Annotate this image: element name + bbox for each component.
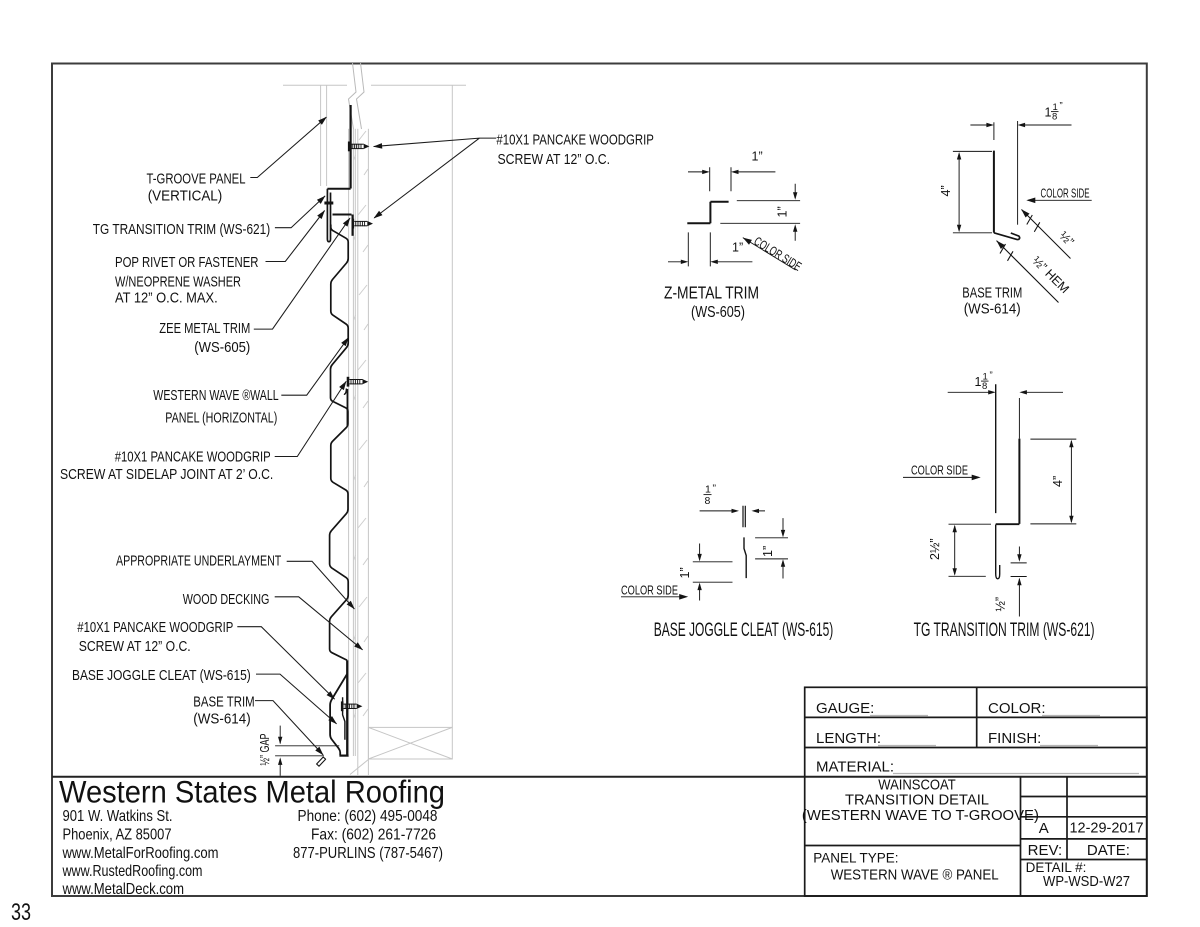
svg-text:(WS-614): (WS-614)	[964, 301, 1021, 318]
svg-text:AT 12” O.C. MAX.: AT 12” O.C. MAX.	[115, 290, 218, 307]
svg-text:”: ”	[713, 483, 717, 495]
svg-text:”: ”	[990, 370, 993, 381]
svg-text:(WESTERN WAVE TO T-GROOVE): (WESTERN WAVE TO T-GROOVE)	[802, 807, 1039, 824]
svg-text:”: ”	[1060, 101, 1063, 112]
svg-text:SCREW AT 12” O.C.: SCREW AT 12” O.C.	[79, 638, 191, 655]
svg-text:www.MetalDeck.com: www.MetalDeck.com	[62, 881, 184, 898]
svg-text:Fax: (602) 261-7726: Fax: (602) 261-7726	[311, 827, 436, 844]
svg-text:#10X1 PANCAKE WOODGRIP: #10X1 PANCAKE WOODGRIP	[77, 619, 233, 636]
svg-text:4”: 4”	[1051, 476, 1065, 487]
svg-text:BASE JOGGLE CLEAT (WS-615): BASE JOGGLE CLEAT (WS-615)	[72, 667, 251, 684]
svg-text:WOOD DECKING: WOOD DECKING	[183, 591, 270, 608]
svg-text:COLOR:: COLOR:	[988, 700, 1046, 717]
svg-text:ZEE METAL TRIM: ZEE METAL TRIM	[159, 320, 250, 337]
svg-text:COLOR SIDE: COLOR SIDE	[1041, 186, 1090, 200]
svg-text:BASE JOGGLE CLEAT (WS-615): BASE JOGGLE CLEAT (WS-615)	[654, 620, 834, 641]
svg-text:Western States Metal Roofing: Western States Metal Roofing	[59, 774, 445, 810]
svg-text:Z-METAL TRIM: Z-METAL TRIM	[664, 283, 759, 303]
svg-text:APPROPRIATE UNDERLAYMENT: APPROPRIATE UNDERLAYMENT	[116, 552, 281, 569]
svg-text:www.MetalForRoofing.com: www.MetalForRoofing.com	[62, 845, 219, 862]
svg-text:½”: ½”	[994, 597, 1008, 612]
svg-text:1”: 1”	[678, 567, 692, 578]
svg-text:33: 33	[11, 899, 31, 926]
svg-text:877-PURLINS (787-5467): 877-PURLINS (787-5467)	[293, 845, 443, 862]
svg-text:1: 1	[975, 375, 982, 389]
svg-text:1”: 1”	[732, 241, 743, 255]
svg-text:1: 1	[1045, 106, 1052, 120]
svg-text:WESTERN WAVE ®WALL: WESTERN WAVE ®WALL	[153, 387, 278, 404]
svg-text:DATE:: DATE:	[1087, 842, 1130, 859]
svg-text:Phone: (602) 495-0048: Phone: (602) 495-0048	[298, 808, 438, 825]
svg-text:1”: 1”	[752, 150, 763, 164]
svg-text:1”: 1”	[776, 206, 790, 217]
svg-text:TRANSITION DETAIL: TRANSITION DETAIL	[845, 792, 989, 809]
svg-text:POP RIVET OR FASTENER: POP RIVET OR FASTENER	[115, 254, 259, 271]
svg-text:8: 8	[1052, 112, 1057, 123]
svg-text:W/NEOPRENE WASHER: W/NEOPRENE WASHER	[115, 274, 241, 291]
svg-text:#10X1 PANCAKE WOODGRIP: #10X1 PANCAKE WOODGRIP	[115, 449, 271, 466]
svg-text:GAUGE:: GAUGE:	[816, 700, 874, 717]
svg-text:1: 1	[705, 484, 711, 496]
svg-text:12-29-2017: 12-29-2017	[1070, 820, 1144, 837]
svg-text:BASE TRIM: BASE TRIM	[962, 284, 1022, 301]
svg-text:WP-WSD-W27: WP-WSD-W27	[1043, 873, 1130, 890]
svg-text:REV:: REV:	[1028, 842, 1062, 859]
svg-text:½” GAP: ½” GAP	[258, 734, 272, 766]
svg-text:LENGTH:: LENGTH:	[816, 730, 881, 747]
svg-text:(WS-605): (WS-605)	[691, 304, 745, 321]
svg-text:TG TRANSITION TRIM (WS-621): TG TRANSITION TRIM (WS-621)	[93, 221, 270, 238]
svg-text:SCREW AT 12” O.C.: SCREW AT 12” O.C.	[498, 151, 611, 168]
svg-text:4”: 4”	[939, 185, 953, 196]
svg-text:TG TRANSITION TRIM (WS-621): TG TRANSITION TRIM (WS-621)	[914, 620, 1095, 641]
svg-text:MATERIAL:: MATERIAL:	[816, 759, 894, 776]
svg-text:WESTERN WAVE ® PANEL: WESTERN WAVE ® PANEL	[831, 867, 999, 884]
svg-text:A: A	[1039, 820, 1049, 837]
svg-text:PANEL (HORIZONTAL): PANEL (HORIZONTAL)	[165, 409, 277, 426]
svg-text:2½”: 2½”	[928, 538, 942, 560]
svg-text:BASE TRIM: BASE TRIM	[193, 694, 254, 711]
svg-text:(VERTICAL): (VERTICAL)	[148, 188, 223, 205]
svg-text:1”: 1”	[761, 546, 775, 557]
svg-text:FINISH:: FINISH:	[988, 730, 1041, 747]
svg-text:#10X1 PANCAKE WOODGRIP: #10X1 PANCAKE WOODGRIP	[496, 132, 654, 149]
svg-text:(WS-614): (WS-614)	[193, 711, 250, 728]
svg-text:(WS-605): (WS-605)	[194, 339, 250, 356]
svg-text:www.RustedRoofing.com: www.RustedRoofing.com	[62, 863, 203, 880]
svg-text:8: 8	[982, 381, 987, 392]
svg-text:T-GROOVE PANEL: T-GROOVE PANEL	[147, 171, 246, 188]
svg-text:Phoenix, AZ 85007: Phoenix, AZ 85007	[63, 827, 172, 844]
svg-text:8: 8	[705, 495, 711, 507]
svg-text:PANEL TYPE:: PANEL TYPE:	[813, 851, 898, 866]
svg-text:901 W. Watkins St.: 901 W. Watkins St.	[63, 808, 173, 825]
svg-text:COLOR SIDE: COLOR SIDE	[911, 463, 968, 477]
svg-text:SCREW AT SIDELAP JOINT AT 2’ O: SCREW AT SIDELAP JOINT AT 2’ O.C.	[60, 466, 273, 483]
svg-text:COLOR SIDE: COLOR SIDE	[621, 583, 678, 597]
